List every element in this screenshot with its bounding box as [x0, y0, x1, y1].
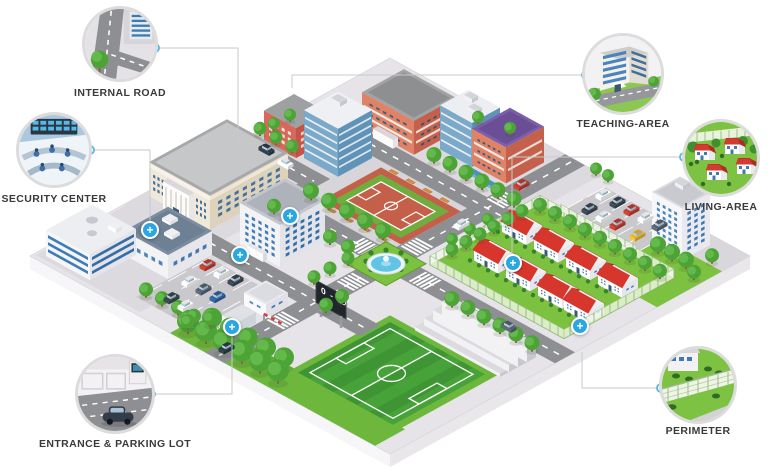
camera-marker-entrance-gate[interactable]: +: [223, 318, 241, 336]
plus-icon: +: [286, 210, 293, 222]
perimeter-label: PERIMETER: [666, 425, 731, 437]
entrance-parking-label: ENTRANCE & PARKING LOT: [39, 438, 191, 450]
callout-teaching-area: TEACHING-AREA: [582, 33, 664, 115]
plus-icon: +: [146, 224, 153, 236]
callout-security-center: SECURITY CENTER: [16, 112, 92, 188]
teaching-area-photo: [585, 36, 661, 112]
security-center-photo: [19, 115, 89, 185]
camera-marker-living-area-east[interactable]: +: [571, 317, 589, 335]
camera-marker-internal-road[interactable]: +: [231, 246, 249, 264]
camera-marker-living-area-west[interactable]: +: [504, 254, 522, 272]
plus-icon: +: [228, 321, 235, 333]
internal-road-photo: [85, 9, 155, 79]
callout-living-area: LIVING-AREA: [682, 119, 760, 197]
teaching-area-label: TEACHING-AREA: [576, 118, 669, 130]
security-center-label: SECURITY CENTER: [2, 193, 107, 205]
living-area-photo: [685, 122, 757, 194]
plus-icon: +: [576, 320, 583, 332]
plus-icon: +: [236, 249, 243, 261]
entrance-parking-photo: [78, 357, 152, 431]
internal-road-label: INTERNAL ROAD: [74, 87, 166, 99]
perimeter-photo: [662, 349, 734, 421]
callout-internal-road: INTERNAL ROAD: [82, 6, 158, 82]
callout-perimeter: PERIMETER: [659, 346, 737, 424]
living-area-label: LIVING-AREA: [685, 201, 758, 213]
smart-campus-illustration: 0 - 1 INTERNAL ROAD: [0, 0, 768, 471]
camera-marker-office-building[interactable]: +: [281, 207, 299, 225]
callout-entrance-parking: ENTRANCE & PARKING LOT: [75, 354, 155, 434]
plus-icon: +: [509, 257, 516, 269]
camera-marker-security-building[interactable]: +: [141, 221, 159, 239]
